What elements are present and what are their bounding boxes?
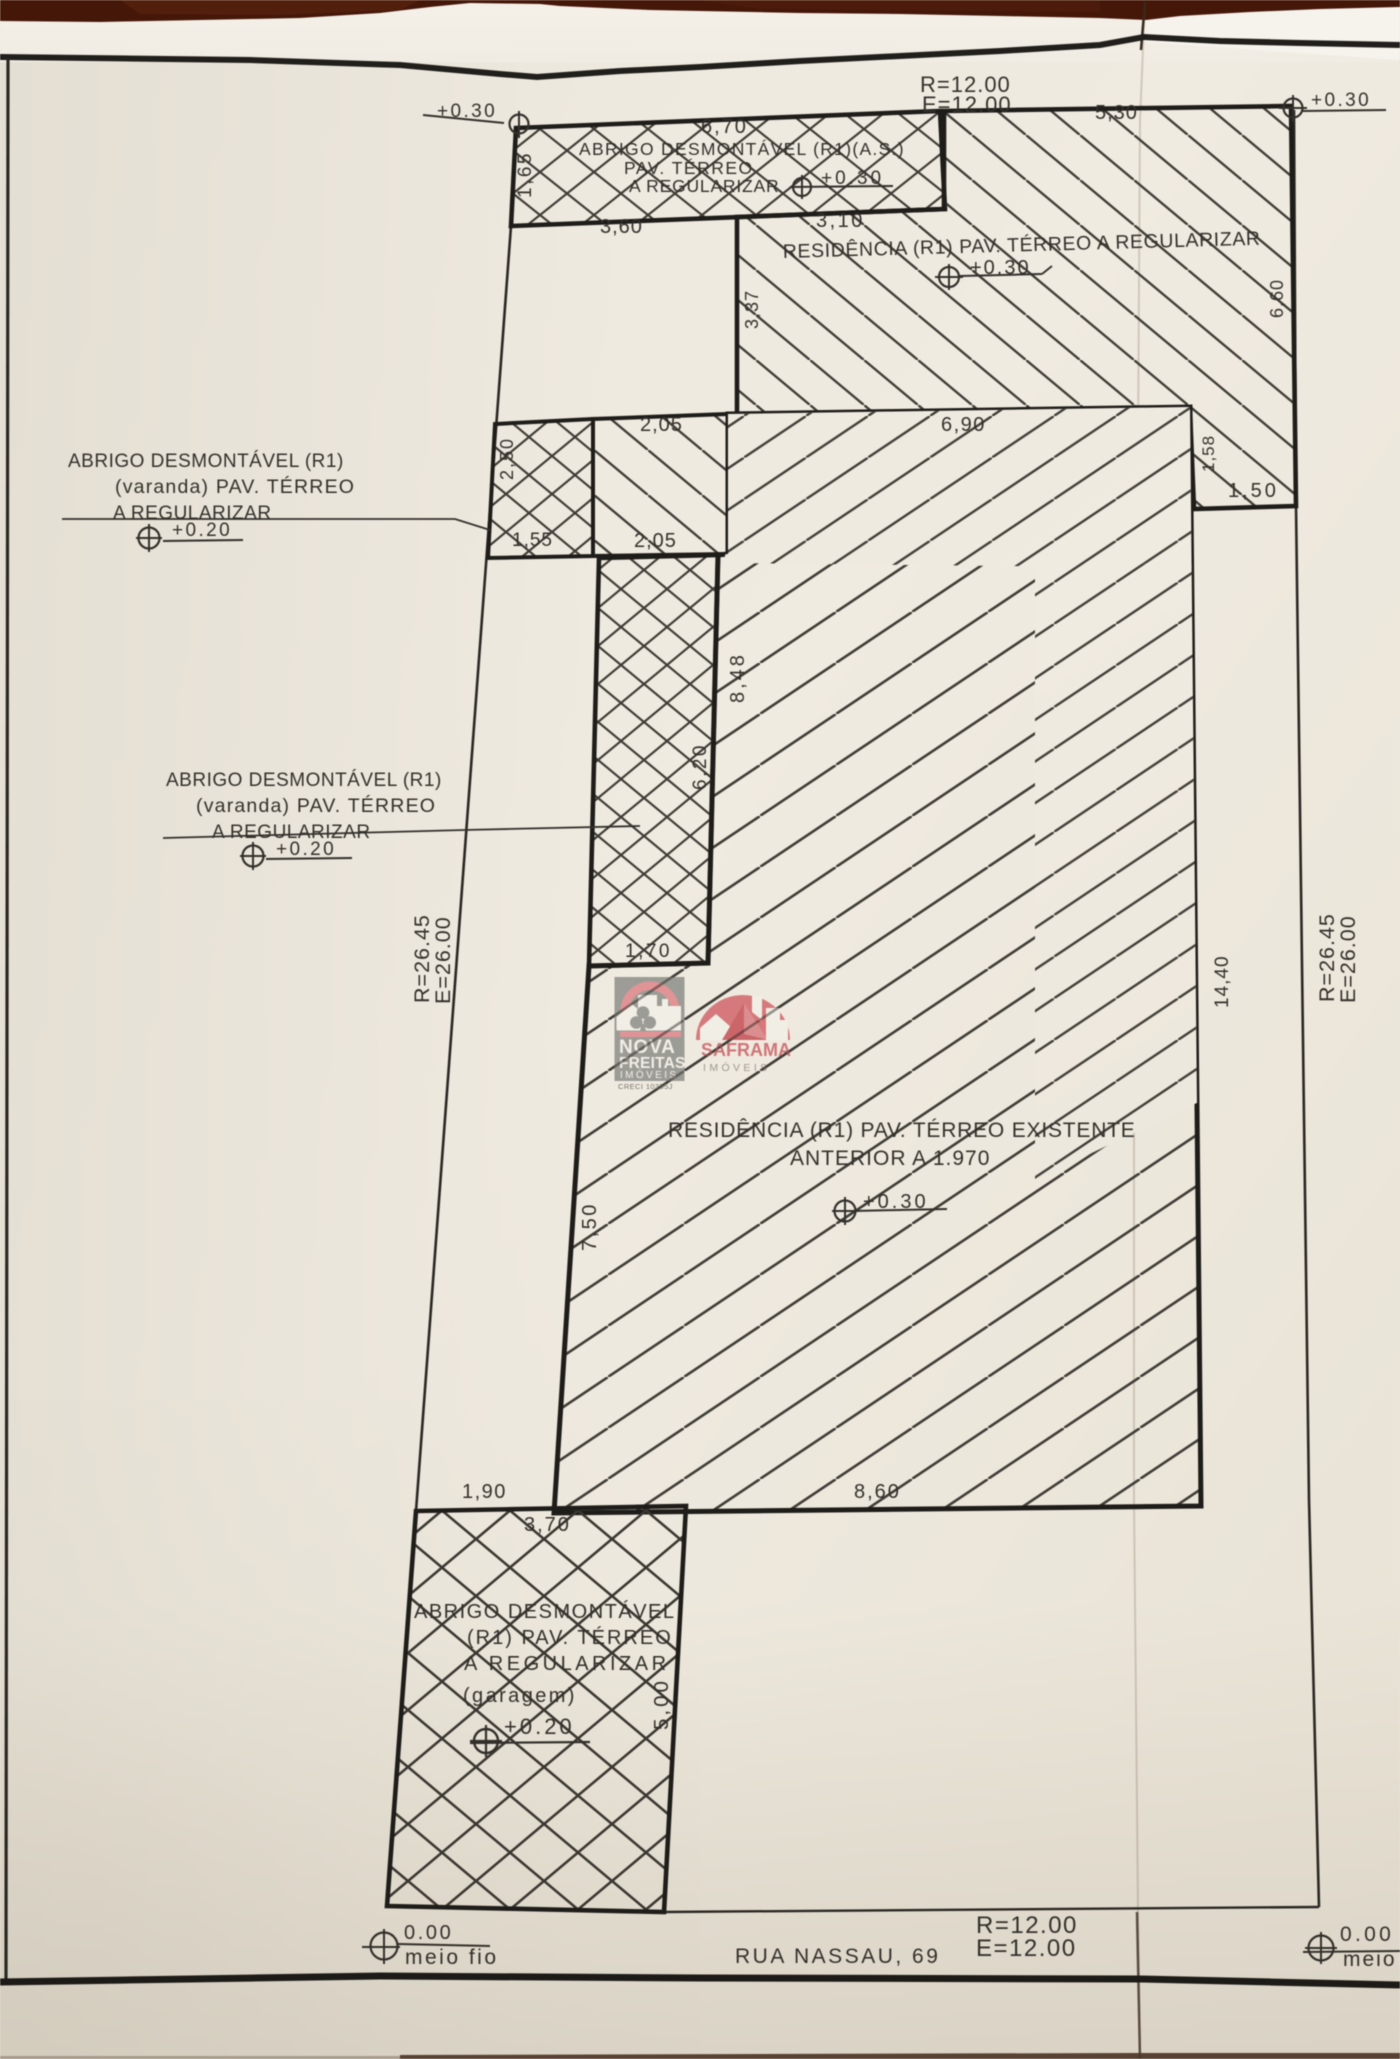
svg-text:+0.20: +0.20: [276, 839, 336, 860]
svg-text:meio fio: meio fio: [405, 1946, 499, 1969]
svg-text:RUA NASSAU, 69: RUA NASSAU, 69: [735, 1945, 940, 1968]
svg-text:1,90: 1,90: [462, 1481, 507, 1503]
svg-text:E=26.00: E=26.00: [1336, 915, 1360, 1003]
svg-text:(R1) PAV. TÉRREO: (R1) PAV. TÉRREO: [467, 1626, 673, 1649]
svg-text:E=26.00: E=26.00: [431, 916, 455, 1004]
svg-text:6,60: 6,60: [1267, 279, 1287, 318]
svg-text:1,50: 1,50: [1228, 480, 1279, 502]
svg-text:6,90: 6,90: [941, 414, 986, 436]
svg-text:0.00: 0.00: [1340, 1923, 1394, 1946]
svg-text:3,60: 3,60: [600, 216, 643, 238]
svg-text:0.00: 0.00: [404, 1922, 453, 1944]
svg-text:+0.20: +0.20: [172, 520, 232, 541]
svg-text:ANTERIOR A 1.970: ANTERIOR A 1.970: [790, 1147, 990, 1170]
svg-text:3,10: 3,10: [816, 210, 865, 232]
svg-text:(varanda) PAV. TÉRREO: (varanda) PAV. TÉRREO: [196, 794, 436, 817]
svg-text:PAV. TÉRREO: PAV. TÉRREO: [624, 158, 754, 178]
svg-text:A REGULARIZAR: A REGULARIZAR: [629, 176, 779, 196]
svg-text:6,20: 6,20: [690, 743, 711, 790]
svg-text:7,50: 7,50: [579, 1202, 601, 1251]
svg-text:ABRIGO DESMONTÁVEL (R1): ABRIGO DESMONTÁVEL (R1): [68, 451, 344, 472]
svg-text:ABRIGO DESMONTÁVEL (R1): ABRIGO DESMONTÁVEL (R1): [166, 770, 442, 791]
svg-text:2,05: 2,05: [634, 530, 677, 552]
svg-text:E=12.00: E=12.00: [922, 92, 1012, 117]
svg-text:1,58: 1,58: [1199, 435, 1218, 472]
svg-text:8,48: 8,48: [727, 652, 749, 703]
svg-text:+0.20: +0.20: [504, 1714, 575, 1739]
svg-text:A REGULARIZAR: A REGULARIZAR: [464, 1653, 670, 1675]
svg-text:CRECI 10355J: CRECI 10355J: [618, 1082, 673, 1091]
svg-text:3,37: 3,37: [742, 290, 762, 329]
svg-text:ABRIGO DESMONTÁVEL: ABRIGO DESMONTÁVEL: [414, 1600, 676, 1623]
svg-text:5,00: 5,00: [650, 1678, 673, 1730]
svg-text:8,60: 8,60: [854, 1481, 901, 1503]
svg-text:14,40: 14,40: [1212, 955, 1233, 1008]
svg-text:(garagem): (garagem): [463, 1685, 577, 1707]
svg-text:6,70: 6,70: [701, 116, 748, 138]
svg-text:RESIDÊNCIA (R1) PAV. TÉRREO EX: RESIDÊNCIA (R1) PAV. TÉRREO EXISTENTE: [668, 1119, 1136, 1142]
svg-text:1,70: 1,70: [625, 941, 672, 962]
svg-text:1,65: 1,65: [515, 151, 536, 198]
svg-text:meio: meio: [1343, 1948, 1397, 1971]
svg-text:5,30: 5,30: [1095, 102, 1138, 124]
svg-text:ABRIGO DESMONTÁVEL (R1)(A.S.): ABRIGO DESMONTÁVEL (R1)(A.S.): [579, 139, 905, 159]
svg-text:1,55: 1,55: [512, 530, 553, 551]
svg-text:E=12.00: E=12.00: [976, 1935, 1077, 1962]
svg-text:2,50: 2,50: [497, 437, 517, 480]
svg-text:3,70: 3,70: [524, 1514, 571, 1536]
svg-text:+0.30: +0.30: [1311, 90, 1371, 111]
svg-text:2,05: 2,05: [640, 414, 683, 436]
svg-text:(varanda) PAV. TÉRREO: (varanda) PAV. TÉRREO: [115, 475, 355, 498]
